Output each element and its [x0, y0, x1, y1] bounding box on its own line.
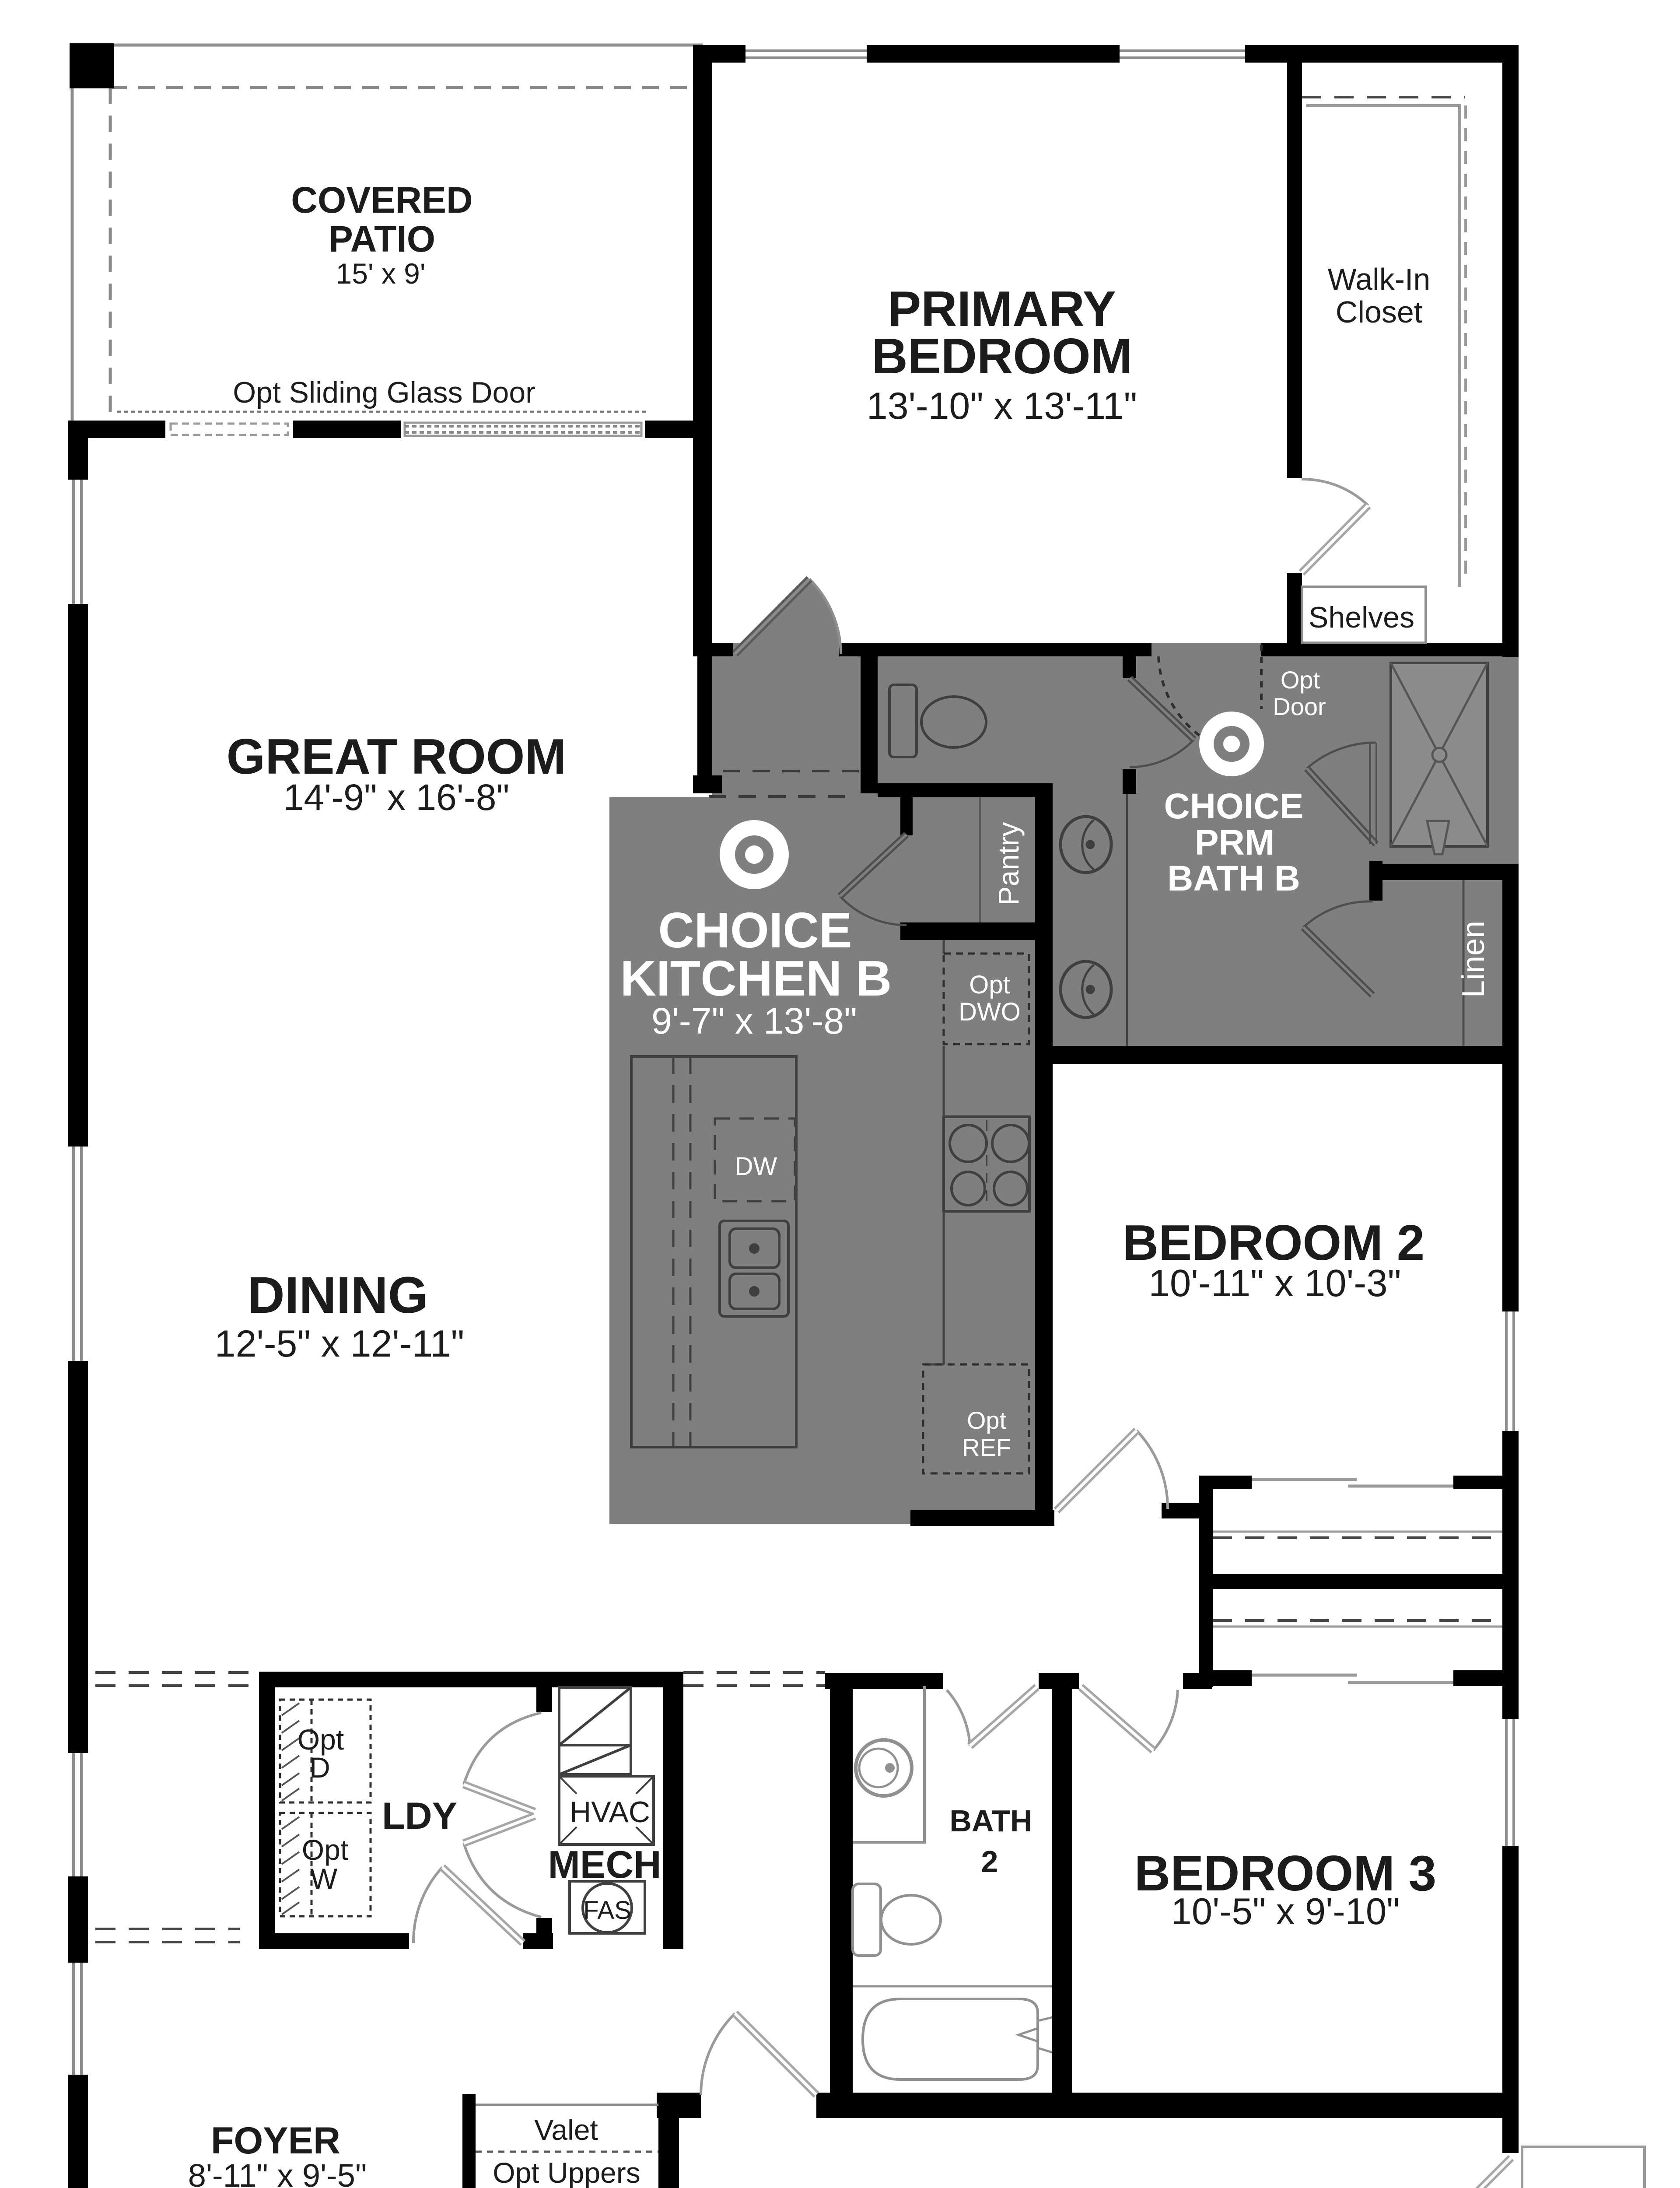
svg-text:BATH B: BATH B	[1167, 859, 1300, 898]
svg-text:Closet: Closet	[1336, 295, 1422, 329]
svg-text:Opt: Opt	[967, 1406, 1007, 1434]
svg-text:BEDROOM: BEDROOM	[871, 329, 1132, 384]
svg-text:Shelves: Shelves	[1309, 601, 1414, 634]
svg-text:DW: DW	[735, 1152, 777, 1181]
svg-text:13'-10" x 13'-11": 13'-10" x 13'-11"	[867, 385, 1137, 427]
svg-text:2: 2	[981, 1844, 998, 1879]
svg-text:9'-7" x 13'-8": 9'-7" x 13'-8"	[651, 1000, 857, 1041]
svg-text:Walk-In: Walk-In	[1328, 262, 1431, 296]
svg-text:Linen: Linen	[1456, 921, 1491, 998]
svg-text:Pantry: Pantry	[992, 822, 1025, 906]
svg-text:Opt Sliding Glass Door: Opt Sliding Glass Door	[233, 376, 535, 409]
svg-text:12'-5" x 12'-11": 12'-5" x 12'-11"	[215, 1323, 464, 1365]
svg-text:FAS: FAS	[583, 1896, 631, 1925]
svg-text:MECH: MECH	[548, 1843, 661, 1886]
svg-text:LDY: LDY	[382, 1795, 457, 1837]
svg-text:Opt Uppers: Opt Uppers	[493, 2156, 640, 2188]
svg-text:Opt: Opt	[302, 1834, 348, 1866]
svg-text:COVERED: COVERED	[291, 179, 472, 221]
svg-text:PATIO: PATIO	[329, 218, 435, 259]
svg-text:Opt: Opt	[1281, 666, 1320, 694]
svg-text:DINING: DINING	[248, 1266, 428, 1324]
svg-text:HVAC: HVAC	[570, 1795, 650, 1829]
svg-text:DWO: DWO	[959, 998, 1021, 1026]
svg-text:GREAT ROOM: GREAT ROOM	[227, 729, 567, 785]
svg-text:10'-5" x 9'-10": 10'-5" x 9'-10"	[1171, 1891, 1400, 1932]
svg-text:W: W	[310, 1862, 338, 1895]
svg-text:BATH: BATH	[949, 1804, 1032, 1838]
svg-text:CHOICE: CHOICE	[1164, 786, 1304, 826]
svg-text:PRM: PRM	[1195, 823, 1274, 863]
svg-text:FOYER: FOYER	[211, 2120, 340, 2162]
svg-text:14'-9" x 16'-8": 14'-9" x 16'-8"	[283, 777, 510, 818]
svg-text:Door: Door	[1273, 693, 1326, 720]
svg-text:8'-11" x 9'-5": 8'-11" x 9'-5"	[188, 2157, 367, 2188]
svg-text:15' x 9': 15' x 9'	[336, 257, 426, 290]
svg-text:Opt: Opt	[969, 971, 1010, 999]
svg-text:REF: REF	[962, 1434, 1011, 1461]
svg-text:10'-11" x 10'-3": 10'-11" x 10'-3"	[1148, 1262, 1401, 1304]
svg-text:KITCHEN B: KITCHEN B	[620, 951, 892, 1006]
svg-text:CHOICE: CHOICE	[658, 903, 852, 958]
svg-text:Opt: Opt	[297, 1723, 344, 1756]
svg-text:Valet: Valet	[534, 2114, 598, 2146]
svg-text:D: D	[309, 1751, 330, 1784]
